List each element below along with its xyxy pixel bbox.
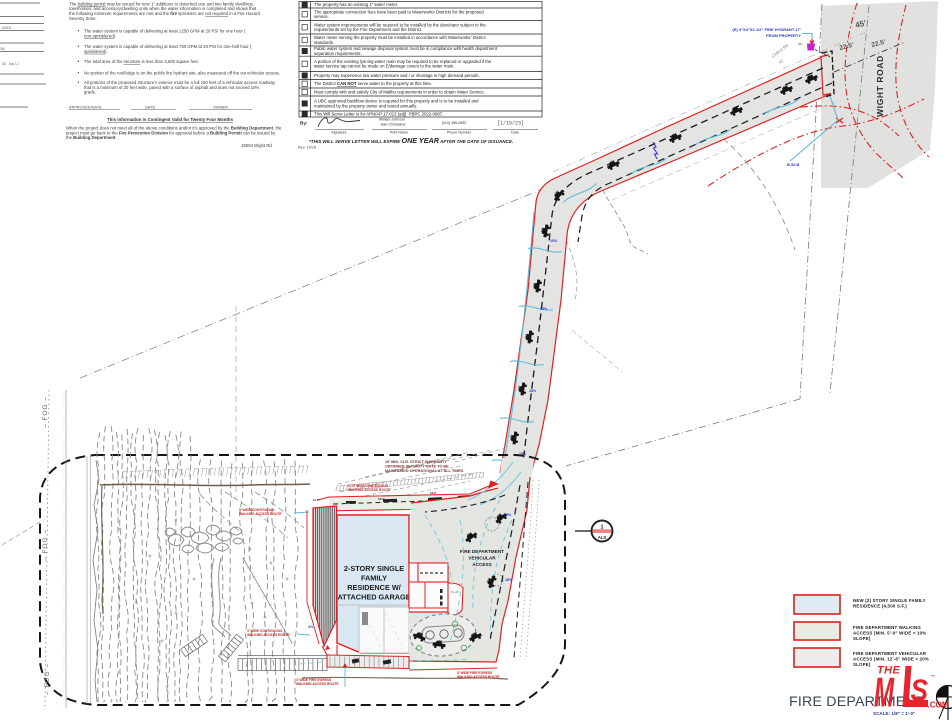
svg-text:19004 Wight Rd: 19004 Wight Rd: [241, 143, 272, 148]
svg-text:Property may experience low wa: Property may experience low water pressu…: [314, 73, 480, 78]
svg-text:The District CAN NOT serve wat: The District CAN NOT serve water to the …: [314, 81, 432, 86]
svg-text:Phone Number: Phone Number: [447, 131, 472, 135]
svg-text:2-STORY SINGLE: 2-STORY SINGLE: [344, 564, 404, 573]
svg-text:– FOG –: – FOG –: [42, 529, 49, 561]
svg-text:1: 1: [600, 525, 603, 531]
svg-text:FL-2F: FL-2F: [451, 590, 459, 594]
svg-text:William Johnson: William Johnson: [379, 118, 405, 122]
svg-text:(310) 456-0890: (310) 456-0890: [442, 121, 467, 125]
svg-text:15%: 15%: [550, 239, 558, 243]
svg-text:OWNER: OWNER: [213, 105, 228, 110]
svg-text:VEHICULAR: VEHICULAR: [468, 556, 496, 561]
svg-text:FIRE DEPARTMENT WALKING: FIRE DEPARTMENT WALKING: [853, 625, 921, 630]
svg-text:RESIDENCE W/: RESIDENCE W/: [347, 583, 401, 592]
svg-text:SLOPE): SLOPE): [853, 662, 871, 667]
svg-text:S: S: [911, 673, 929, 708]
svg-text:Date: Date: [511, 131, 519, 135]
svg-text:•: •: [78, 59, 80, 65]
svg-text:Print Name: Print Name: [390, 131, 408, 135]
svg-text:By:: By:: [300, 121, 308, 126]
svg-text:•: •: [78, 29, 80, 35]
svg-text:(E) 4"X4"X2-1/2" FIRE HYDRANT: (E) 4"X4"X2-1/2" FIRE HYDRANT 17’: [732, 27, 801, 32]
svg-text:Severity Zone.: Severity Zone.: [69, 16, 97, 21]
svg-text:WIGHT ROAD: WIGHT ROAD: [875, 55, 885, 117]
svg-text:the following minimum requirem: the following minimum requirements are m…: [69, 11, 260, 16]
svg-text:FAMILY: FAMILY: [361, 574, 387, 583]
svg-text:Must comply with and satisfy C: Must comply with and satisfy City of Mal…: [314, 89, 485, 94]
svg-text:standards.: standards.: [314, 40, 334, 45]
svg-text:18%: 18%: [505, 578, 513, 582]
svg-text:DATE: DATE: [145, 105, 155, 110]
svg-text:requirements set by the Fire D: requirements set by the Fire Department …: [314, 27, 422, 32]
svg-text:RESIDENCE (4,500 S.F.): RESIDENCE (4,500 S.F.): [853, 604, 907, 609]
svg-text:service.: service.: [314, 14, 329, 19]
svg-text:This information is Contingent: This information is Contingent Valid for…: [107, 117, 234, 122]
svg-text:[1/15/23]: [1/15/23]: [497, 121, 524, 127]
svg-text:sprinklered).: sprinklered).: [84, 49, 108, 54]
svg-text:FIRE DEPARTMENT VEHICULAR: FIRE DEPARTMENT VEHICULAR: [853, 651, 927, 656]
svg-text:15%: 15%: [540, 307, 548, 311]
svg-text:Rev. 10/18: Rev. 10/18: [298, 146, 316, 150]
svg-text:•: •: [78, 44, 80, 50]
svg-text:Water meter serving the proper: Water meter serving the property must be…: [314, 35, 487, 40]
svg-text:PP: PP: [798, 43, 803, 47]
svg-text:The appropriate connection fee: The appropriate connection fees have bee…: [314, 9, 484, 14]
svg-text:that is a minimum of 20 feet w: that is a minimum of 20 feet wide, paved…: [84, 85, 260, 90]
svg-text:The property has an existing 1: The property has an existing 1" water me…: [314, 2, 398, 7]
svg-text:•: •: [78, 71, 80, 77]
svg-text:15: 15: [0, 46, 5, 51]
svg-text:non-sprinklered).: non-sprinklered).: [84, 33, 116, 38]
svg-text:FROM PROPERTY: FROM PROPERTY: [766, 33, 801, 38]
svg-text:No portion of the roof/edge is: No portion of the roof/edge is on the pu…: [84, 71, 280, 76]
svg-text:APPROVED/DATE: APPROVED/DATE: [69, 105, 102, 110]
svg-text:™: ™: [931, 674, 936, 679]
svg-text:18%: 18%: [529, 389, 537, 393]
svg-text:11.5’: 11.5’: [313, 498, 320, 502]
svg-text:ALS: ALS: [598, 535, 607, 540]
svg-text:water service tap cannot be ma: water service tap cannot be made on E/da…: [314, 64, 454, 69]
svg-text:-4510: -4510: [1, 25, 12, 30]
svg-text:15.2’: 15.2’: [430, 491, 437, 495]
svg-text:FIRE DEPARTMENT: FIRE DEPARTMENT: [460, 549, 504, 554]
svg-text:☒ No ☐: ☒ No ☐: [2, 61, 19, 66]
svg-text:4%: 4%: [308, 625, 314, 629]
svg-text:ATTACHED GARAGE: ATTACHED GARAGE: [337, 593, 410, 602]
svg-text:ACCESS: ACCESS: [472, 562, 492, 567]
svg-text:•: •: [78, 80, 80, 86]
svg-text:This Will Serve Letter is for: This Will Serve Letter is for APN/AP 17-…: [314, 111, 443, 116]
svg-text:15%: 15%: [504, 513, 512, 517]
svg-text:···: ···: [252, 149, 255, 153]
svg-text:Signature: Signature: [331, 131, 346, 135]
svg-text:B-52-B: B-52-B: [787, 163, 799, 167]
svg-text:.COM: .COM: [928, 701, 949, 710]
svg-text:– FOG –: – FOG –: [44, 663, 51, 695]
svg-text:NEW (2) STORY SINGLE FAMILY: NEW (2) STORY SINGLE FAMILY: [853, 598, 926, 603]
svg-text:grade.: grade.: [84, 90, 96, 95]
svg-text:ACCESS (MIN. 5’-0" WIDE < 10%: ACCESS (MIN. 5’-0" WIDE < 10%: [853, 631, 926, 636]
svg-text:19.0’: 19.0’: [378, 497, 385, 501]
svg-text:The total area of the structur: The total area of the structure is less …: [84, 59, 199, 64]
svg-text:maintained by the property own: maintained by the property owner and tes…: [314, 103, 417, 108]
svg-text:ACCESS (MIN. 12’-6" WIDE < 20%: ACCESS (MIN. 12’-6" WIDE < 20%: [853, 657, 929, 662]
svg-text:– FOG –: – FOG –: [42, 396, 49, 428]
svg-text:Ivan Christakov: Ivan Christakov: [381, 123, 406, 127]
svg-text:The water system is capable of: The water system is capable of deliverin…: [84, 44, 252, 49]
svg-text:separation requirements.: separation requirements.: [314, 51, 362, 56]
svg-text:the Building Department.: the Building Department.: [66, 135, 117, 140]
svg-text:SLOPE): SLOPE): [853, 636, 871, 641]
svg-text:M: M: [874, 669, 895, 716]
svg-text:5’-0" WIDE CONTIGUOUSWALKING A: 5’-0" WIDE CONTIGUOUSWALKING ACCESS ROUT…: [348, 484, 391, 492]
